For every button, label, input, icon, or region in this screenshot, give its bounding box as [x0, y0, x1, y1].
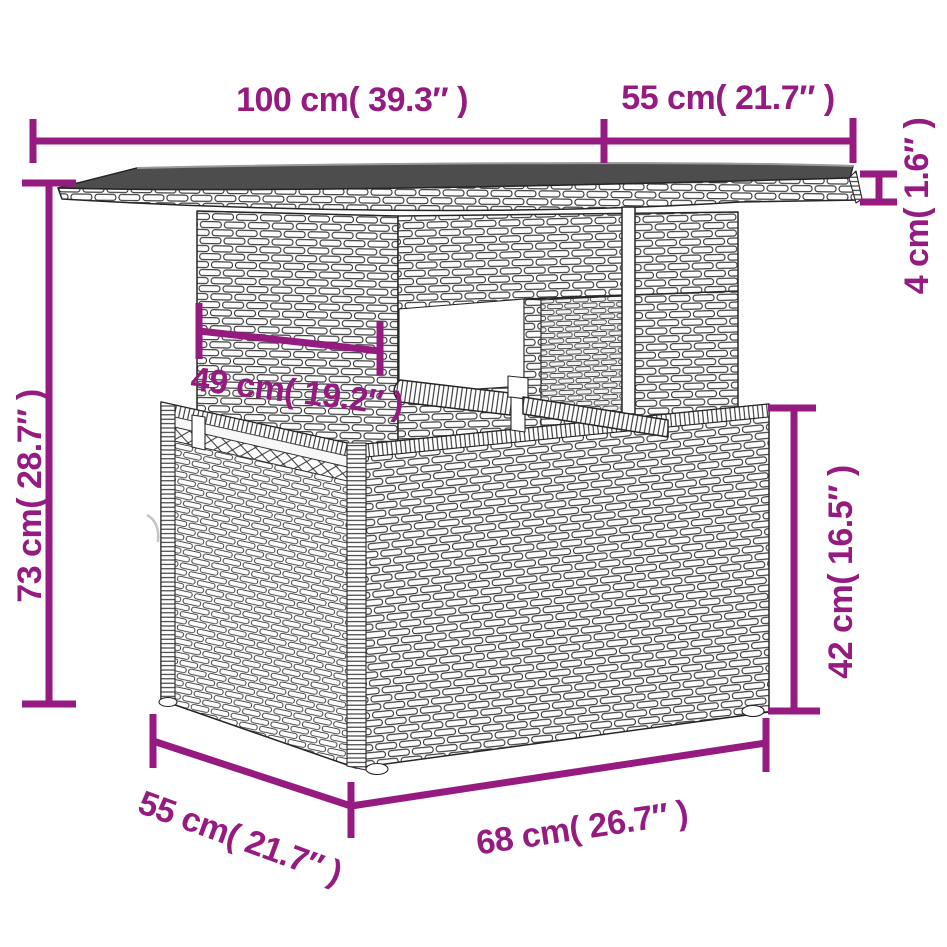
- stray-mark: [147, 515, 158, 542]
- dimension-top-depth: 55 cm( 21.7″ ): [604, 79, 853, 163]
- dimension-label-total-height: 73 cm( 28.7″ ): [11, 389, 49, 602]
- dimension-top-width: 100 cm( 39.3″ ): [33, 81, 604, 163]
- dimension-label-top-depth: 55 cm( 21.7″ ): [621, 79, 834, 117]
- dimension-total-height: 73 cm( 28.7″ ): [11, 183, 76, 704]
- base-foot-near: [366, 764, 388, 775]
- diagram-svg: 100 cm( 39.3″ ) 55 cm( 21.7″ ) 4 cm( 1.6…: [0, 0, 947, 947]
- dimension-label-base-width: 68 cm( 26.7″ ): [474, 793, 691, 862]
- pedestal-inner-wall-shade: [541, 296, 622, 414]
- base-front-face: [356, 404, 769, 768]
- dimension-label-top-thickness: 4 cm( 1.6″ ): [898, 118, 936, 295]
- dimension-label-base-depth: 55 cm( 21.7″ ): [133, 784, 347, 893]
- base-corner-roll-left: [161, 402, 175, 703]
- dimension-base-height: 42 cm( 16.5″ ): [768, 408, 860, 711]
- base-inner-post: [192, 415, 205, 450]
- table-top: [58, 163, 862, 210]
- roll-end-block: [508, 376, 528, 399]
- base-foot-right: [742, 706, 764, 717]
- pedestal-right-post: [622, 207, 635, 414]
- storage-base: [159, 402, 769, 775]
- base-foot-back: [159, 698, 177, 707]
- product-dimension-diagram: 100 cm( 39.3″ ) 55 cm( 21.7″ ) 4 cm( 1.6…: [0, 0, 947, 947]
- pedestal-window-opening: [399, 299, 524, 394]
- dimension-label-top-width: 100 cm( 39.3″ ): [236, 81, 468, 119]
- base-corner-roll-near: [347, 443, 366, 770]
- dimension-top-thickness: 4 cm( 1.6″ ): [860, 118, 936, 295]
- dimension-label-base-height: 42 cm( 16.5″ ): [822, 465, 860, 678]
